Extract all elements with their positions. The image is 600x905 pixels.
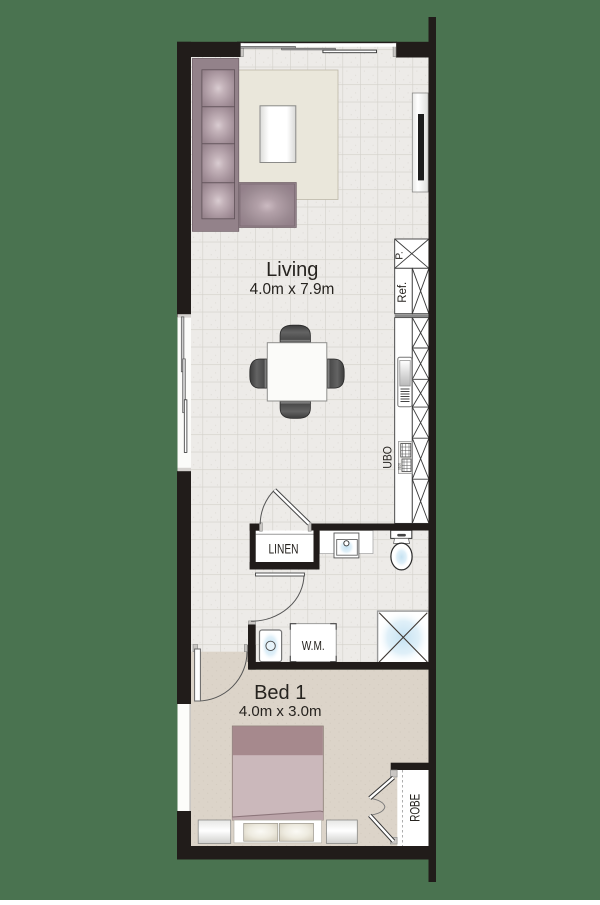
svg-text:0100: 0100 [398,463,402,470]
svg-text:W.M.: W.M. [302,639,325,653]
svg-text:4.0m x 7.9m: 4.0m x 7.9m [250,281,335,298]
svg-text:Living: Living [266,259,318,281]
svg-text:4.0m x 3.0m: 4.0m x 3.0m [239,703,322,720]
svg-text:P.: P. [395,251,406,260]
svg-text:UBO: UBO [380,446,394,469]
svg-text:LINEN: LINEN [269,542,299,557]
svg-text:Ref.: Ref. [397,282,409,303]
svg-text:ROBE: ROBE [407,794,422,822]
svg-text:Bed 1: Bed 1 [254,682,306,704]
